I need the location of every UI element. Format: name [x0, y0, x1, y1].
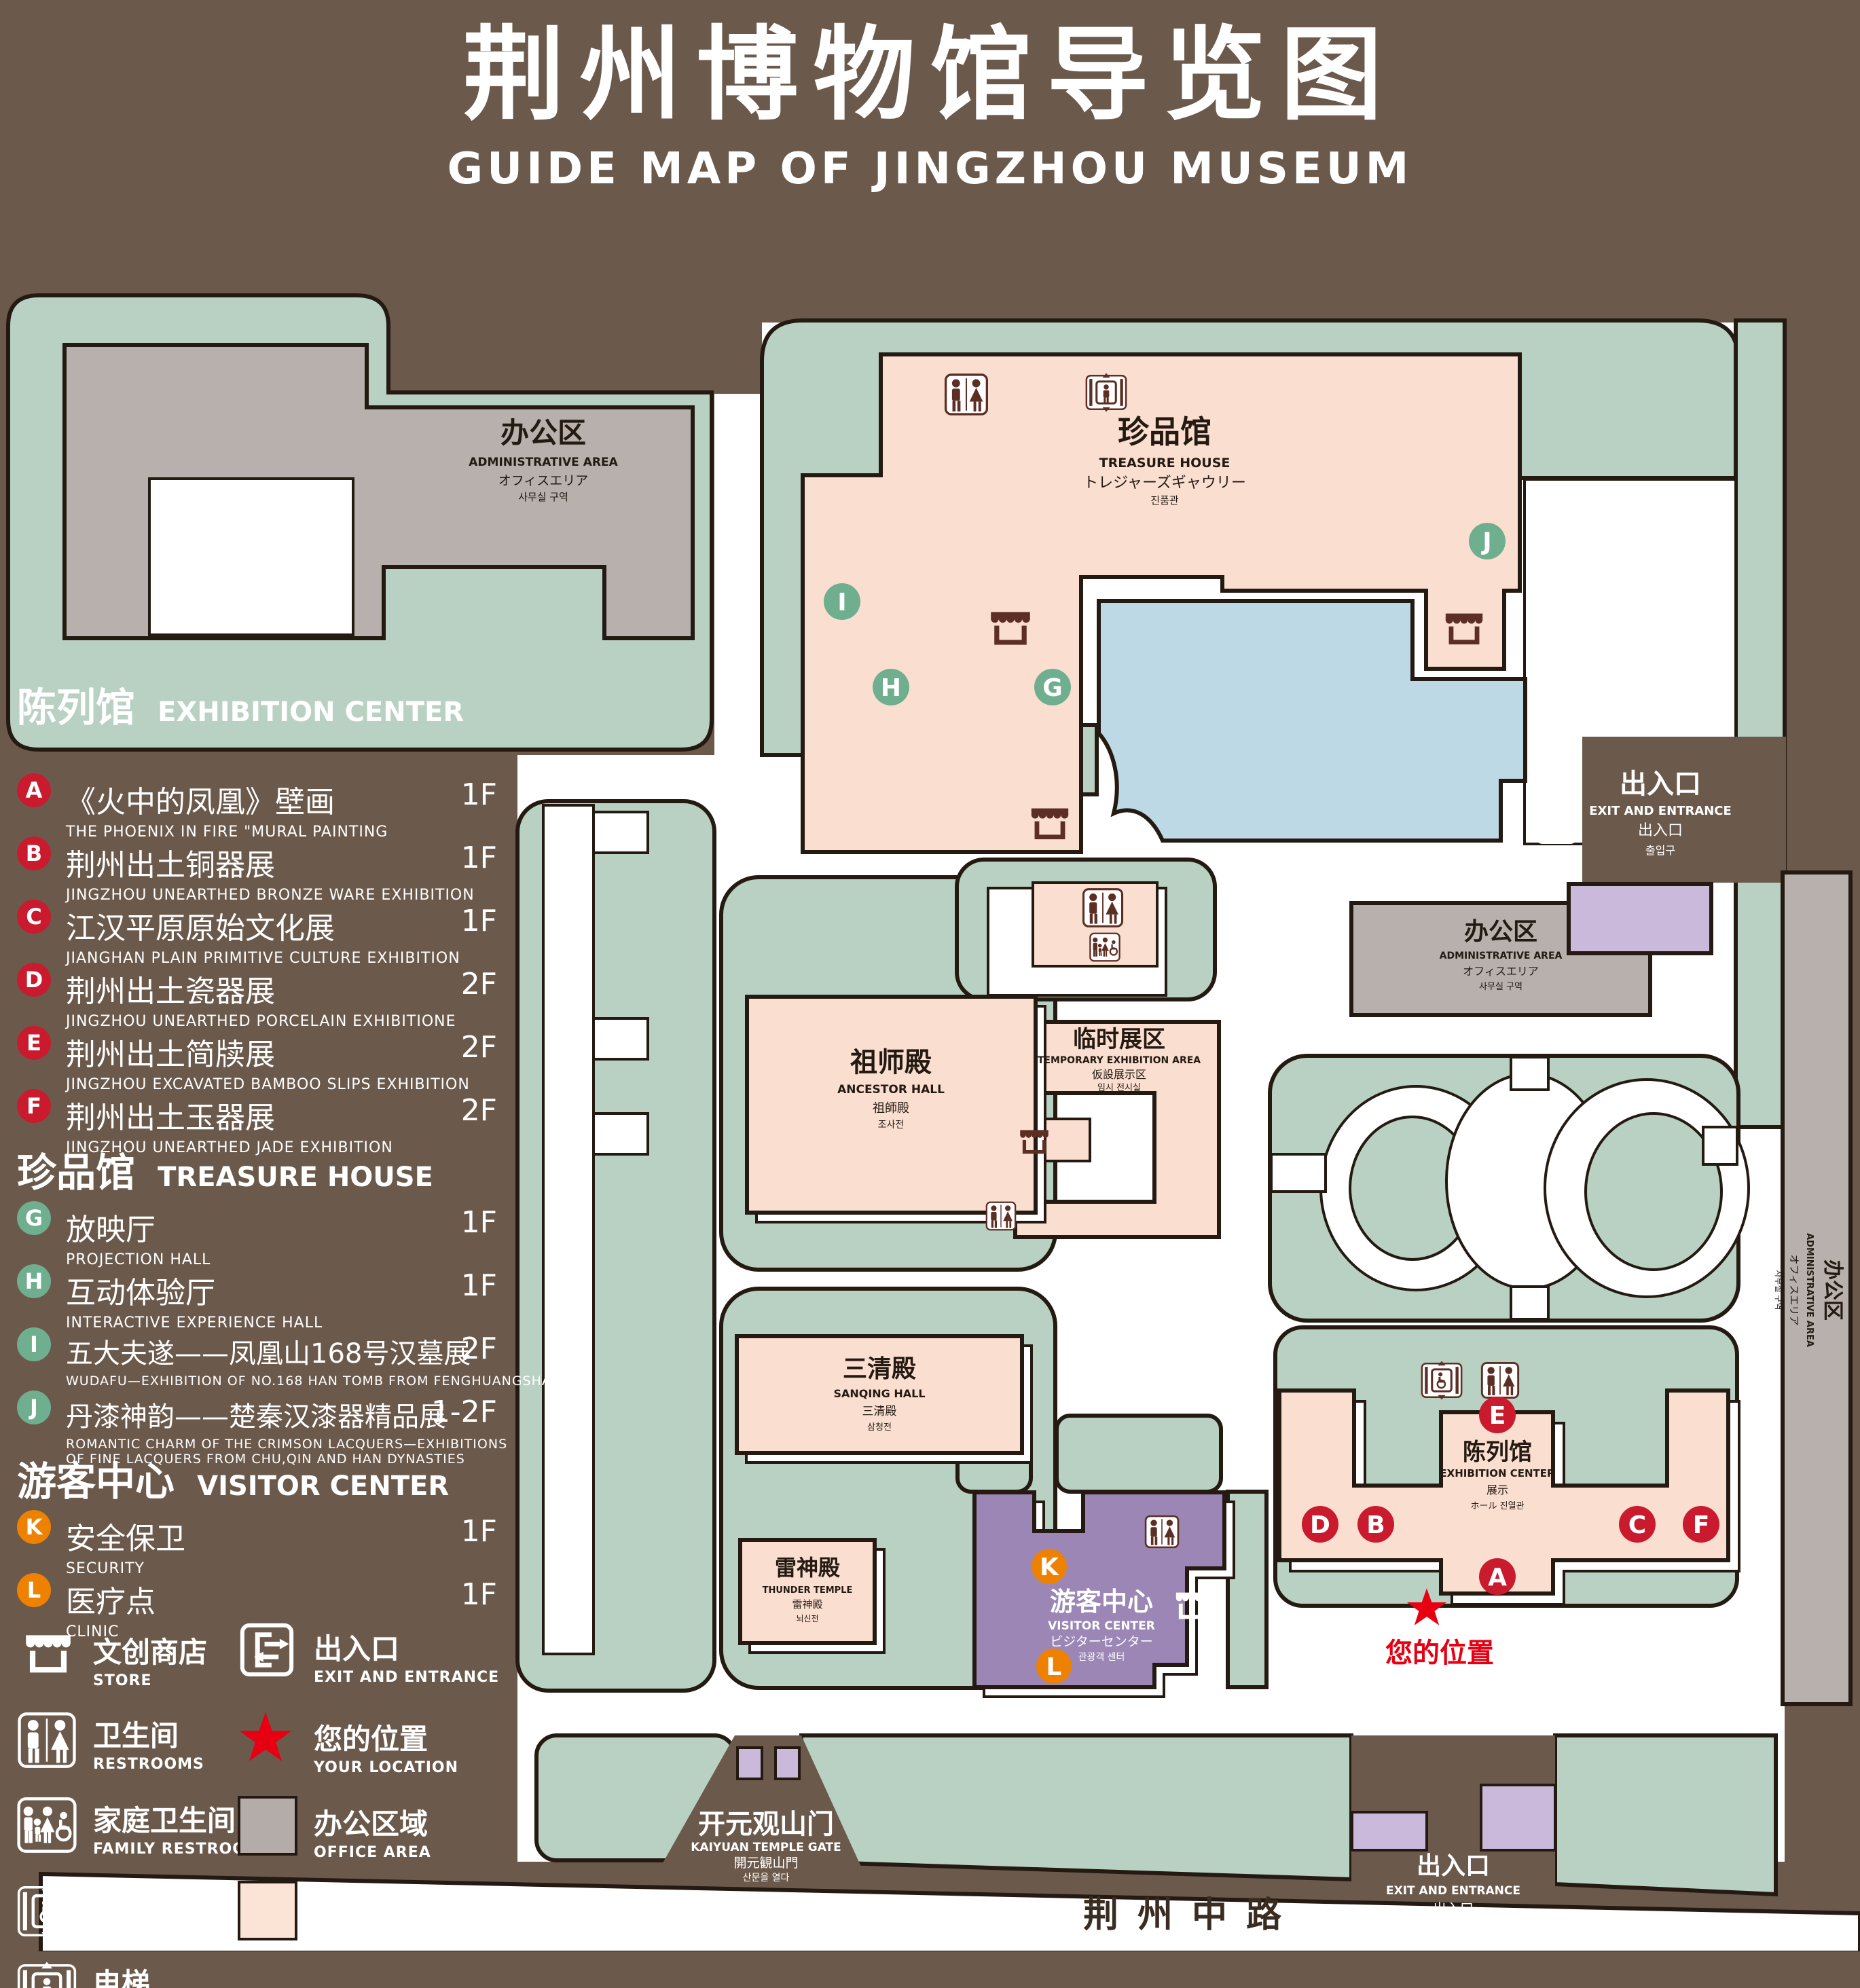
temporary-label-cn: 临时展区 — [1073, 1026, 1165, 1053]
sanqing-label-kr: 삼청전 — [867, 1422, 892, 1433]
admin-e-label-kr: 사무실 구역 — [1479, 982, 1522, 992]
west-corridor-branch — [594, 1113, 648, 1154]
family-restroom-icon — [1090, 934, 1119, 961]
legend-item-C: C 江汉平原原始文化展 1F JIANGHAN PLAIN PRIMITIVE … — [17, 904, 509, 967]
treasure-label-jp: トレジャーズギャウリー — [1083, 475, 1246, 492]
badge-I: I — [17, 1327, 51, 1361]
restroom-icon — [946, 375, 987, 414]
sanqing-label-cn: 三清殿 — [843, 1355, 916, 1383]
thunder-label-en: THUNDER TEMPLE — [763, 1585, 853, 1596]
display-area-swatch — [238, 1881, 297, 1940]
accessible-elevator-icon — [19, 1884, 75, 1939]
svg-text:オフィスエリア: オフィスエリア — [1788, 1255, 1800, 1326]
badge-H: H — [17, 1264, 51, 1298]
restroom-icon — [20, 1714, 75, 1766]
legend-item-D: D 荆州出土瓷器展 2F JINGZHOU UNEARTHED PORCELAI… — [17, 967, 509, 1030]
garden-path-south — [1511, 1287, 1548, 1319]
visitor-label-jp: ビジターセンター — [1050, 1634, 1153, 1649]
exit-south-en: EXIT AND ENTRANCE — [1386, 1884, 1520, 1898]
garden-path-west — [1271, 1154, 1326, 1192]
family-restroom-icon — [19, 1799, 75, 1851]
marker-E: E — [1489, 1402, 1506, 1430]
badge-C: C — [17, 900, 51, 934]
temporary-label-jp: 仮設展示区 — [1092, 1068, 1146, 1081]
garden-island — [1586, 1113, 1721, 1270]
badge-A: A — [17, 773, 51, 807]
exit-icon — [242, 1625, 291, 1674]
legend-item-G: G 放映厅 1F PROJECTION HALL — [17, 1205, 509, 1268]
visitor-lawn-b — [1057, 1416, 1221, 1492]
admin-e-label-cn: 办公区 — [1464, 918, 1537, 946]
exit-east-en: EXIT AND ENTRANCE — [1589, 804, 1732, 818]
badge-J: J — [17, 1391, 51, 1424]
legend-section-visitor: 游客中心 VISITOR CENTER — [17, 1450, 449, 1507]
ancestor-label-cn: 祖师殿 — [850, 1047, 932, 1078]
ancestor-label-jp: 祖師殿 — [873, 1101, 909, 1116]
title-en: GUIDE MAP OF JINGZHOU MUSEUM — [0, 144, 1860, 194]
treasure-label-en: TREASURE HOUSE — [1099, 456, 1230, 471]
treasure-label-kr: 진품관 — [1150, 494, 1179, 507]
title-cn: 荆州博物馆导览图 — [0, 12, 1860, 140]
your-location-star-icon — [239, 1712, 291, 1761]
exhibition-label-jp: 展示 — [1487, 1484, 1508, 1496]
visitor-label-kr: 관광객 센터 — [1078, 1652, 1125, 1663]
west-corridor-branch — [594, 1018, 648, 1059]
thunder-label-cn: 雷神殿 — [775, 1555, 840, 1581]
accessible-elevator-icon — [1422, 1361, 1461, 1399]
admin-courtyard — [149, 479, 353, 635]
gate-label-en: KAIYUAN TEMPLE GATE — [691, 1841, 841, 1854]
legend-item-K: K 安全保卫 1F SECURITY — [17, 1514, 509, 1577]
your-location-label: 您的位置 — [1385, 1638, 1494, 1669]
legend-item-H: H 互动体验厅 1F INTERACTIVE EXPERIENCE HALL — [17, 1268, 509, 1331]
exhibition-label-kr: ホール 진열관 — [1470, 1501, 1524, 1511]
admin-nw-label-cn: 办公区 — [500, 416, 586, 449]
guide-map-poster: 办公区 ADMINISTRATIVE AREA オフィスエリア 사무실 구역 珍… — [0, 0, 1860, 1988]
exit-south-kr: 출입구 — [1439, 1920, 1467, 1932]
exhibition-label-en: EXHIBITION CENTER — [1440, 1467, 1555, 1479]
exit-east-kr: 출입구 — [1645, 844, 1675, 857]
visitor-label-cn: 游客中心 — [1050, 1587, 1153, 1617]
marker-C: C — [1628, 1511, 1646, 1539]
temporary-label-kr: 임시 전시실 — [1097, 1083, 1141, 1093]
west-corridor — [543, 805, 594, 1654]
store-icon — [26, 1635, 71, 1670]
legend-section-treasure: 珍品馆 TREASURE HOUSE — [17, 1141, 433, 1198]
badge-E: E — [17, 1026, 51, 1060]
sanqing-label-jp: 三清殿 — [862, 1405, 897, 1418]
admin-nw-label-kr: 사무실 구역 — [518, 491, 568, 503]
badge-K: K — [17, 1510, 51, 1544]
lawn-east-strip — [1736, 320, 1785, 1127]
legend-item-A: A 《火中的凤凰》壁画 1F THE PHOENIX IN FIRE "MURA… — [17, 777, 509, 841]
admin-nw-label-jp: オフィスエリア — [498, 473, 589, 488]
east-exit-booth — [1569, 884, 1711, 953]
admin-e-label-en: ADMINISTRATIVE AREA — [1440, 951, 1563, 961]
restroom-icon — [1482, 1363, 1518, 1397]
gate-booth — [776, 1748, 799, 1779]
elevator-icon — [1087, 373, 1126, 411]
gate-label-kr: 산문을 열다 — [743, 1873, 790, 1883]
marker-A: A — [1488, 1564, 1507, 1591]
marker-G: G — [1042, 674, 1063, 702]
svg-text:사무실 구역: 사무실 구역 — [1774, 1270, 1783, 1310]
marker-D: D — [1310, 1511, 1330, 1539]
poster-title: 荆州博物馆导览图 GUIDE MAP OF JINGZHOU MUSEUM — [0, 0, 1860, 194]
legend-item-E: E 荆州出土简牍展 2F JINGZHOU EXCAVATED BAMBOO S… — [17, 1030, 509, 1093]
ancestor-label-kr: 조사전 — [878, 1120, 905, 1130]
badge-B: B — [17, 836, 51, 870]
road-label: 荆州中路 — [1083, 1895, 1300, 1936]
temporary-label-en: TEMPORARY EXHIBITION AREA — [1038, 1055, 1201, 1066]
legend-section-exhibition: 陈列馆 EXHIBITION CENTER — [17, 676, 464, 733]
gate-booth — [737, 1748, 762, 1779]
marker-H: H — [881, 674, 901, 702]
legend-item-B: B 荆州出土铜器展 1F JINGZHOU UNEARTHED BRONZE W… — [17, 841, 509, 904]
marker-B: B — [1366, 1511, 1385, 1539]
visitor-label-en: VISITOR CENTER — [1048, 1619, 1155, 1633]
marker-F: F — [1693, 1511, 1710, 1539]
badge-F: F — [17, 1089, 51, 1123]
garden-path-east — [1703, 1127, 1737, 1164]
ancestor-label-en: ANCESTOR HALL — [837, 1083, 945, 1097]
admin-e-label-jp: オフィスエリア — [1463, 965, 1539, 978]
legend-item-I: I 五大夫遂——凤凰山168号汉墓展 2F WUDAFU—EXHIBITION … — [17, 1331, 509, 1388]
north-path — [714, 394, 763, 757]
gate-label-cn: 开元观山门 — [698, 1809, 834, 1840]
exit-east-cn: 出入口 — [1620, 769, 1701, 800]
marker-L: L — [1046, 1653, 1062, 1681]
garden-path-north — [1511, 1057, 1548, 1090]
svg-text:办公区: 办公区 — [1821, 1259, 1844, 1321]
marker-J: J — [1480, 528, 1491, 556]
marker-K: K — [1040, 1553, 1059, 1581]
restroom-icon — [987, 1202, 1015, 1230]
exit-south-jp: 出入口 — [1433, 1900, 1474, 1917]
marker-I: I — [837, 589, 846, 616]
exhibition-label-cn: 陈列馆 — [1463, 1439, 1532, 1466]
south-lawn-b — [801, 1735, 1351, 1879]
exit-east-jp: 出入口 — [1638, 822, 1683, 839]
office-area-swatch — [238, 1796, 297, 1856]
south-exit-booth — [1481, 1785, 1555, 1850]
admin-nw-label-en: ADMINISTRATIVE AREA — [469, 456, 618, 469]
west-corridor-branch — [594, 812, 648, 853]
badge-G: G — [17, 1201, 51, 1235]
south-exit-booth — [1352, 1812, 1427, 1850]
restroom-icon — [1083, 889, 1122, 927]
svg-text:ADMINISTRATIVE AREA: ADMINISTRATIVE AREA — [1804, 1233, 1815, 1347]
thunder-label-kr: 뇌신전 — [796, 1614, 818, 1623]
sanqing-label-en: SANQING HALL — [833, 1387, 925, 1400]
gate-label-jp: 開元観山門 — [733, 1856, 798, 1871]
badge-D: D — [17, 963, 51, 997]
thunder-label-jp: 雷神殿 — [792, 1598, 822, 1610]
restroom-icon — [1146, 1516, 1178, 1547]
exit-south-cn: 出入口 — [1417, 1852, 1490, 1880]
road-south-bank — [0, 1951, 1860, 1988]
south-lawn-c — [1555, 1735, 1776, 1894]
elevator-icon — [19, 1962, 75, 1988]
badge-L: L — [17, 1573, 51, 1607]
treasure-label-cn: 珍品馆 — [1118, 413, 1211, 450]
